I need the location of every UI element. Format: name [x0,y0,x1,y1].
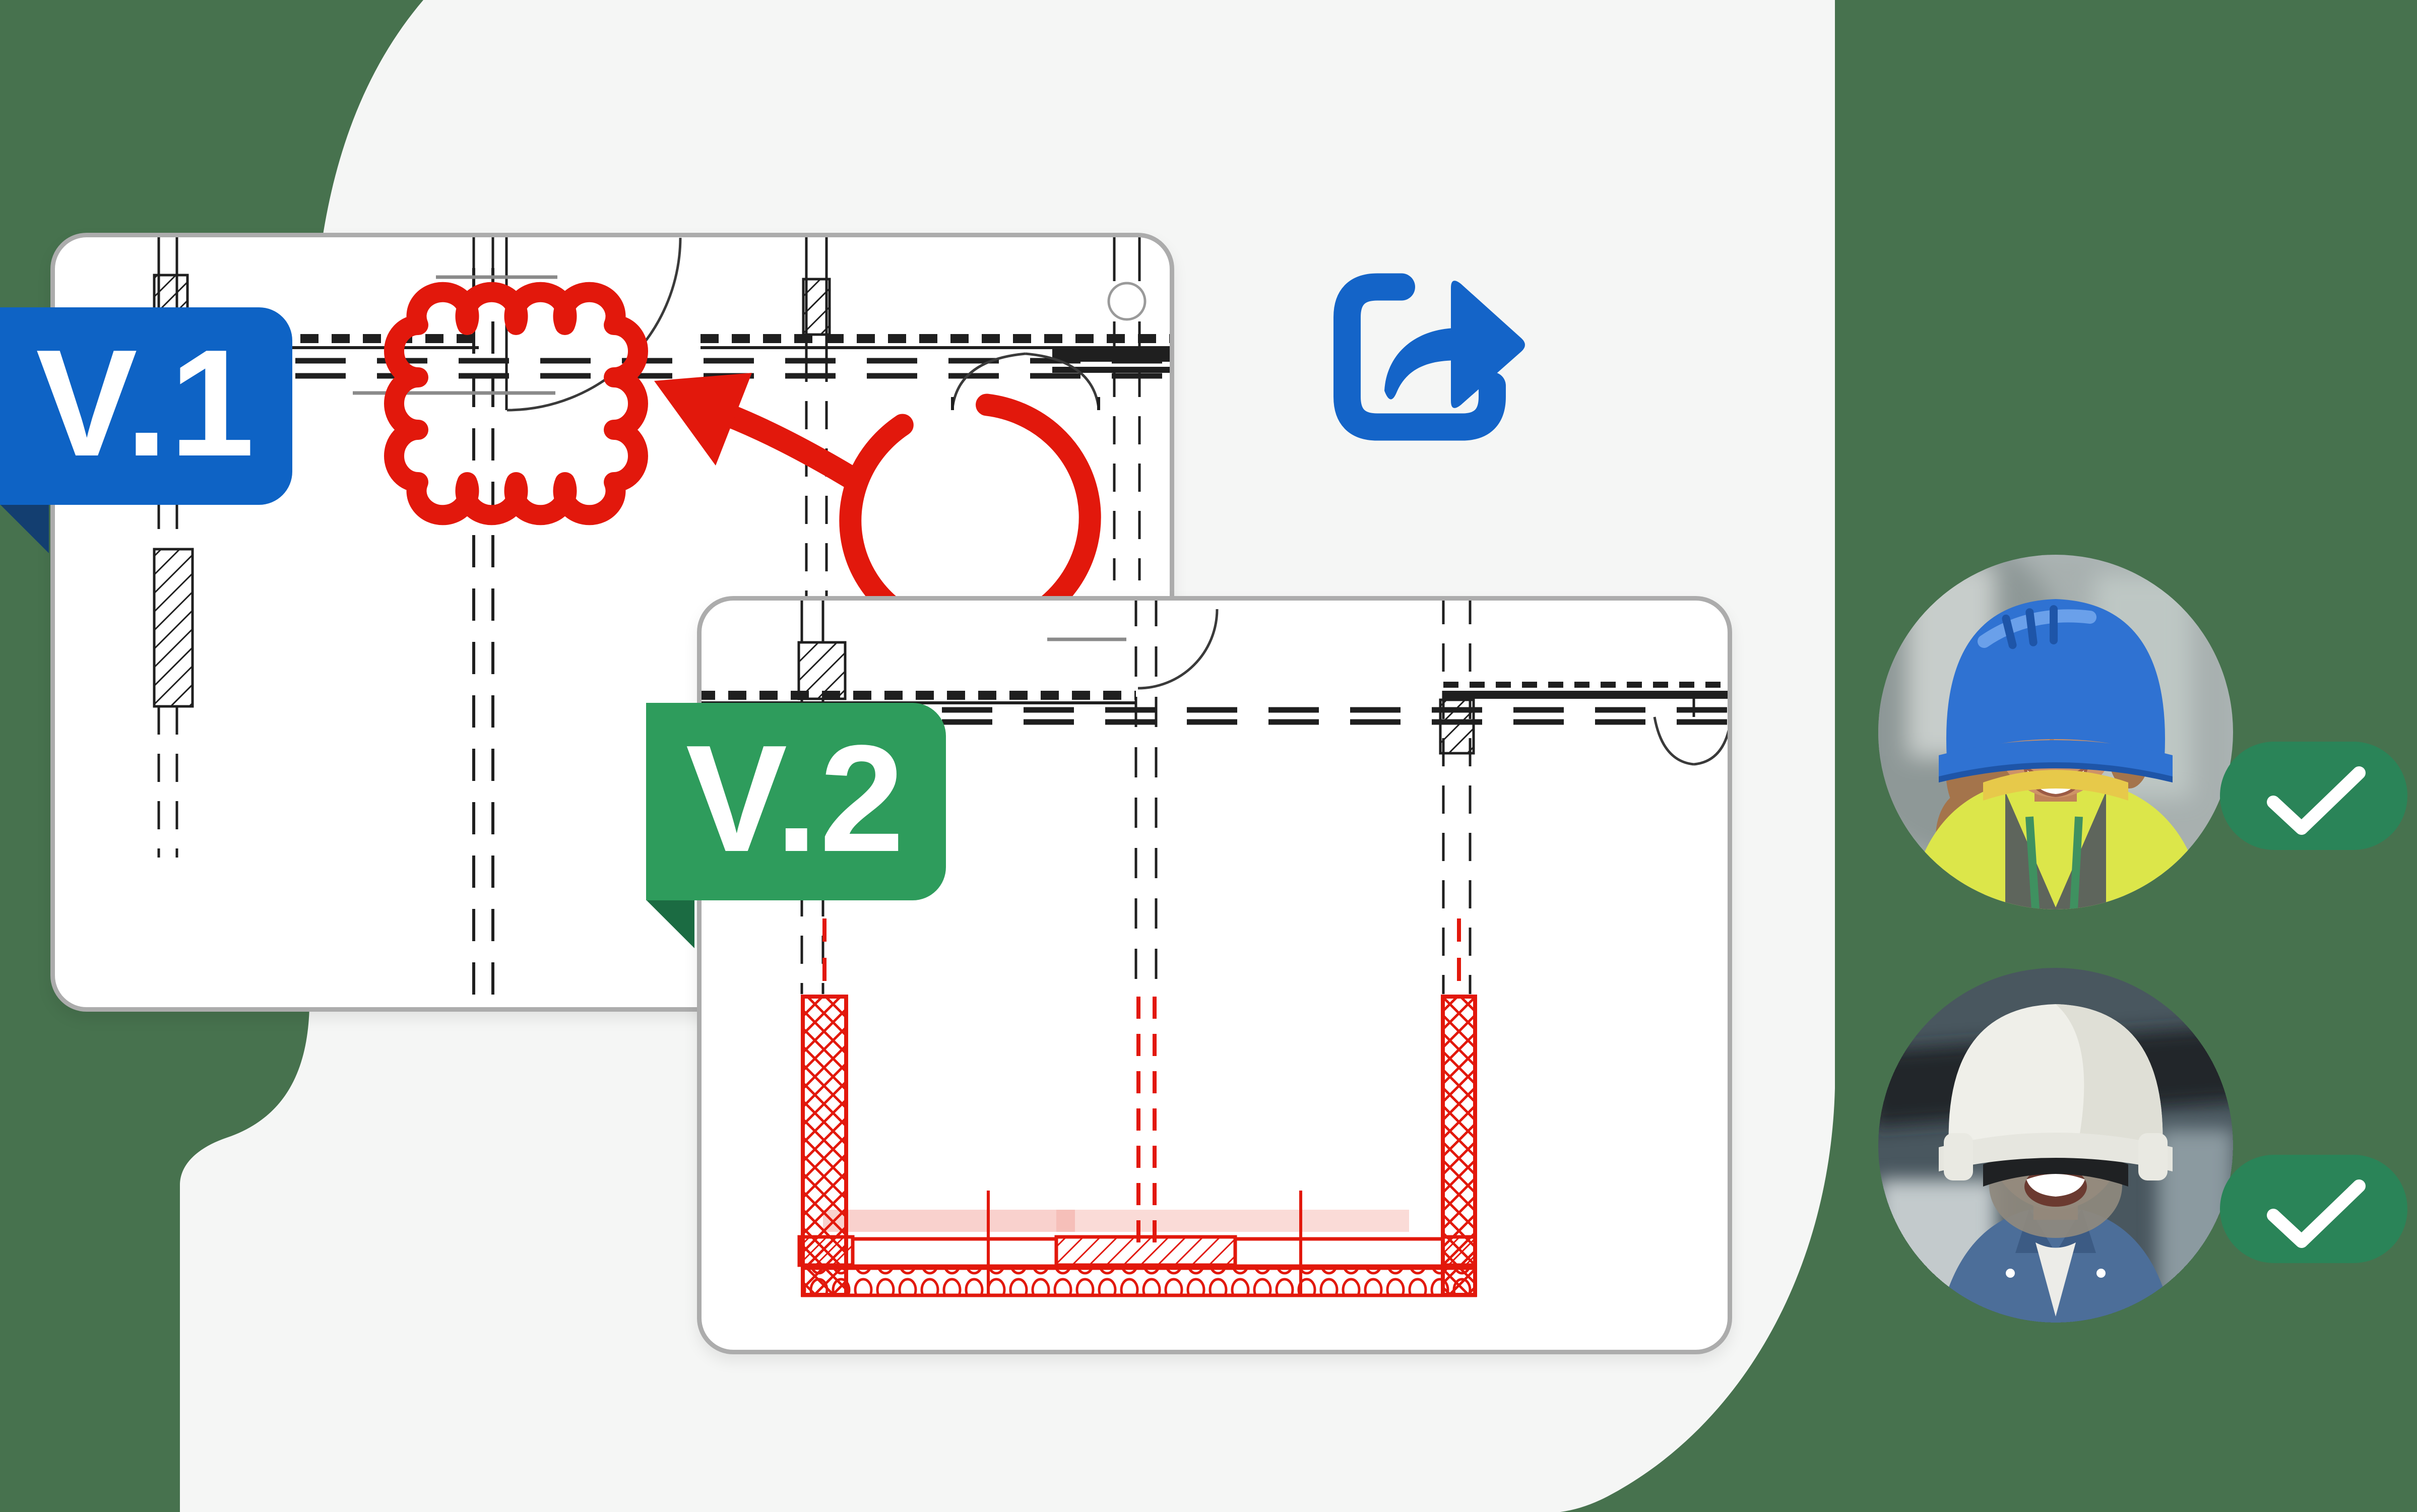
approval-badge-1 [2220,742,2407,850]
share-forward-icon[interactable] [1328,254,1540,446]
avatar-worker-white-helmet [1878,968,2233,1323]
checkmark-icon [2220,1155,2407,1263]
checkmark-icon [2220,742,2407,850]
v2-label: V.2 [686,711,907,886]
avatar-worker-blue-helmet [1878,555,2233,909]
hero-illustration: V.1 V.2 [0,0,2417,1512]
version-badge-v1: V.1 [0,307,292,505]
approval-badge-2 [2220,1155,2407,1263]
version-badge-v2: V.2 [646,703,946,900]
v1-label: V.1 [36,315,257,490]
